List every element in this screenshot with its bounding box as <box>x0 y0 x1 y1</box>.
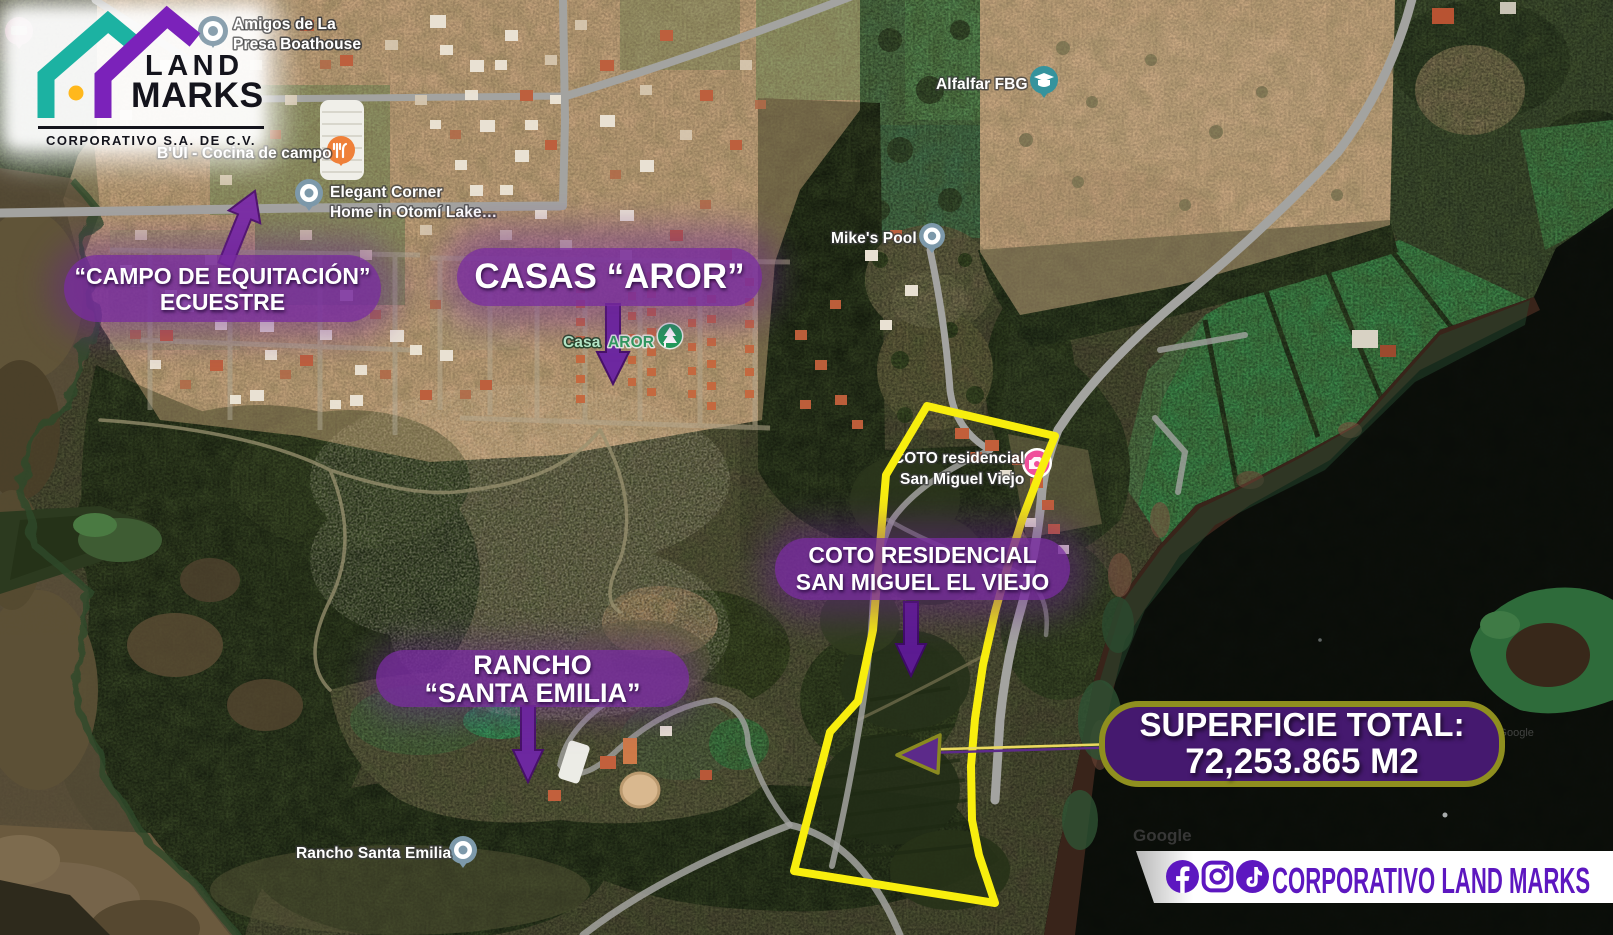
svg-text:Rancho Santa Emilia: Rancho Santa Emilia <box>296 845 451 862</box>
svg-text:Alfalfar FBG: Alfalfar FBG <box>936 76 1028 93</box>
svg-text:Google: Google <box>1133 826 1192 845</box>
svg-text:AROR: AROR <box>608 334 654 351</box>
svg-text:Casa: Casa <box>563 334 601 351</box>
svg-text:COTO residencial: COTO residencial <box>893 450 1024 467</box>
svg-text:Mike's Pool: Mike's Pool <box>831 230 917 247</box>
svg-text:San Miguel Viejo: San Miguel Viejo <box>900 471 1024 488</box>
